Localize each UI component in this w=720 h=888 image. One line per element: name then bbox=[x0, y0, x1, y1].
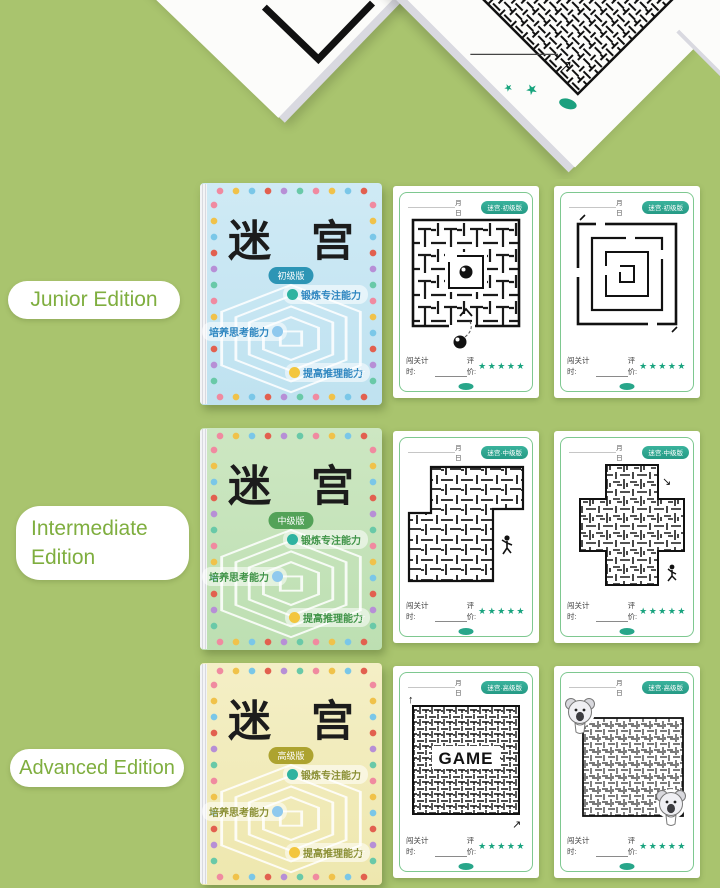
timer-blank bbox=[596, 856, 628, 857]
cover-title: 迷 宫 bbox=[200, 207, 382, 269]
rating-label: 评价: bbox=[467, 355, 477, 377]
timer-blank bbox=[435, 856, 467, 857]
right-page-maze-graphic: ↑ ★ ★ bbox=[328, 0, 720, 167]
timer-label: 闯关计时: bbox=[406, 600, 432, 622]
pencil-icon bbox=[287, 769, 298, 780]
maze-sheet-intermediate-2: 月 日 迷宫·中级版 ↘ 闯关计时: 评价:★★★★★ bbox=[554, 431, 700, 643]
label-text: Intermediate Edition bbox=[31, 514, 189, 573]
page-number-oval bbox=[620, 863, 635, 870]
maze-graphic bbox=[563, 690, 691, 832]
feature-badge-focus: 锻炼专注能力 bbox=[283, 765, 368, 784]
book-cover-intermediate: 迷 宫 中级版 锻炼专注能力 培养思考能力 提高推理能力 ☆ bbox=[200, 428, 382, 650]
page-number-oval bbox=[459, 628, 474, 635]
feature-badge-thinking: 培养思考能力 bbox=[202, 802, 287, 821]
runner-icon bbox=[502, 535, 512, 554]
maze-game-text: GAME bbox=[439, 749, 494, 768]
dotted-border bbox=[212, 185, 372, 197]
page-number-oval bbox=[620, 628, 635, 635]
timer-label: 闯关计时: bbox=[567, 600, 593, 622]
feature-text: 培养思考能力 bbox=[209, 324, 269, 339]
sheet-footer: 闯关计时: 评价:★★★★★ bbox=[406, 600, 526, 622]
cloud-icon bbox=[272, 571, 283, 582]
page-number-oval bbox=[459, 383, 474, 390]
pencil-icon bbox=[287, 289, 298, 300]
sheet-footer: 闯关计时: 评价:★★★★★ bbox=[406, 355, 526, 377]
label-advanced-edition: Advanced Edition bbox=[10, 749, 184, 787]
bulb-icon bbox=[289, 367, 300, 378]
sheet-footer: 闯关计时: 评价:★★★★★ bbox=[567, 835, 687, 857]
ball-icon bbox=[454, 336, 467, 349]
maze-graphic bbox=[405, 210, 527, 352]
timer-blank bbox=[435, 621, 467, 622]
entry-arrow-icon: ↑ bbox=[408, 694, 414, 706]
label-text: Advanced Edition bbox=[19, 757, 175, 780]
timer-label: 闯关计时: bbox=[567, 835, 593, 857]
sheet-footer: 闯关计时: 评价:★★★★★ bbox=[406, 835, 526, 857]
product-image: ★ ★ ★ ★ ↑ ★ ★ Junior Edition Intermediat… bbox=[0, 0, 720, 888]
rating-label: 评价: bbox=[628, 355, 638, 377]
timer-blank bbox=[435, 376, 467, 377]
feature-text: 锻炼专注能力 bbox=[301, 287, 361, 302]
rating-label: 评价: bbox=[467, 835, 477, 857]
cover-title: 迷 宫 bbox=[200, 687, 382, 749]
maze-graphic bbox=[566, 210, 688, 352]
maze-graphic: GAME ↑ ↗ bbox=[405, 690, 527, 832]
star-icon: ★ bbox=[522, 79, 542, 99]
rating-stars: ★★★★★ bbox=[478, 841, 526, 852]
feature-text: 锻炼专注能力 bbox=[301, 767, 361, 782]
top-photo-banner: ★ ★ ★ ★ ↑ ★ ★ bbox=[0, 0, 720, 179]
timer-label: 闯关计时: bbox=[406, 355, 432, 377]
left-page-graphic: ★ ★ ★ ★ bbox=[84, 0, 466, 118]
maze-sheet-junior-2: 月 日 迷宫·初级版 闯关计时: 评价:★★★★★ bbox=[554, 186, 700, 398]
page-number-oval bbox=[620, 383, 635, 390]
entry-arrow-icon: ↘ bbox=[662, 476, 671, 488]
feature-badge-focus: 锻炼专注能力 bbox=[283, 285, 368, 304]
rating-stars: ★★★★★ bbox=[478, 606, 526, 617]
name-line bbox=[569, 207, 616, 208]
timer-blank bbox=[596, 621, 628, 622]
maze-graphic: ↘ bbox=[562, 455, 692, 597]
maze-graphic bbox=[401, 455, 531, 597]
label-text: Junior Edition bbox=[30, 288, 157, 312]
book-cover-advanced: 迷 宫 高级版 锻炼专注能力 培养思考能力 提高推理能力 ☆ bbox=[200, 663, 382, 885]
dotted-border bbox=[212, 430, 372, 442]
rating-stars: ★★★★★ bbox=[639, 606, 687, 617]
exit-arrow-icon: ↗ bbox=[512, 819, 521, 831]
feature-text: 培养思考能力 bbox=[209, 804, 269, 819]
rating-label: 评价: bbox=[467, 600, 477, 622]
feature-text: 锻炼专注能力 bbox=[301, 532, 361, 547]
timer-blank bbox=[596, 376, 628, 377]
feature-badge-focus: 锻炼专注能力 bbox=[283, 530, 368, 549]
cloud-icon bbox=[272, 326, 283, 337]
star-icon: ★ bbox=[501, 81, 515, 95]
timer-label: 闯关计时: bbox=[406, 835, 432, 857]
bulb-icon bbox=[289, 847, 300, 858]
page-number-oval bbox=[459, 863, 474, 870]
pencil-icon bbox=[287, 534, 298, 545]
maze-sheet-advanced-1: 月 日 迷宫·高级版 GAME ↑ ↗ 闯关计时: 评价:★★★★★ bbox=[393, 666, 539, 878]
rating-label: 评价: bbox=[628, 600, 638, 622]
ball-icon bbox=[460, 266, 473, 279]
rating-label: 评价: bbox=[628, 835, 638, 857]
timer-label: 闯关计时: bbox=[567, 355, 593, 377]
tilted-maze-page-left: ★ ★ ★ ★ bbox=[84, 0, 466, 118]
maze-sheet-advanced-2: 月 日 迷宫·高级版 bbox=[554, 666, 700, 878]
name-line bbox=[569, 452, 616, 453]
sheet-footer: 闯关计时: 评价:★★★★★ bbox=[567, 355, 687, 377]
rating-stars: ★★★★★ bbox=[478, 361, 526, 372]
name-line bbox=[408, 452, 455, 453]
star-doodle-icon: ☆ bbox=[354, 845, 366, 861]
rating-stars: ★★★★★ bbox=[639, 361, 687, 372]
feature-badge-thinking: 培养思考能力 bbox=[202, 567, 287, 586]
bulb-icon bbox=[289, 612, 300, 623]
name-line bbox=[569, 687, 616, 688]
name-line bbox=[408, 687, 455, 688]
label-junior-edition: Junior Edition bbox=[8, 281, 180, 319]
runner-icon bbox=[668, 565, 676, 581]
label-intermediate-edition: Intermediate Edition bbox=[16, 506, 189, 580]
sheet-footer: 闯关计时: 评价:★★★★★ bbox=[567, 600, 687, 622]
tilted-maze-page-right: ↑ ★ ★ bbox=[328, 0, 720, 167]
koala-icon bbox=[656, 789, 686, 826]
maze-sheet-intermediate-1: 月 日 迷宫·中级版 闯关计时: 评价:★★★★★ bbox=[393, 431, 539, 643]
book-cover-junior: 迷 宫 初级版 锻炼专注能力 培养思考能力 提高推理能力 ☆ bbox=[200, 183, 382, 405]
cloud-icon bbox=[272, 806, 283, 817]
cover-title: 迷 宫 bbox=[200, 452, 382, 514]
leaf-doodle bbox=[558, 96, 578, 111]
star-doodle-icon: ☆ bbox=[354, 365, 366, 381]
maze-sheet-junior-1: 月 日 迷宫·初级版 闯关计时: 评价:★★★★★ bbox=[393, 186, 539, 398]
dotted-border bbox=[212, 665, 372, 677]
rating-stars: ★★★★★ bbox=[639, 841, 687, 852]
feature-text: 培养思考能力 bbox=[209, 569, 269, 584]
star-doodle-icon: ☆ bbox=[354, 610, 366, 626]
name-line bbox=[408, 207, 455, 208]
feature-badge-thinking: 培养思考能力 bbox=[202, 322, 287, 341]
